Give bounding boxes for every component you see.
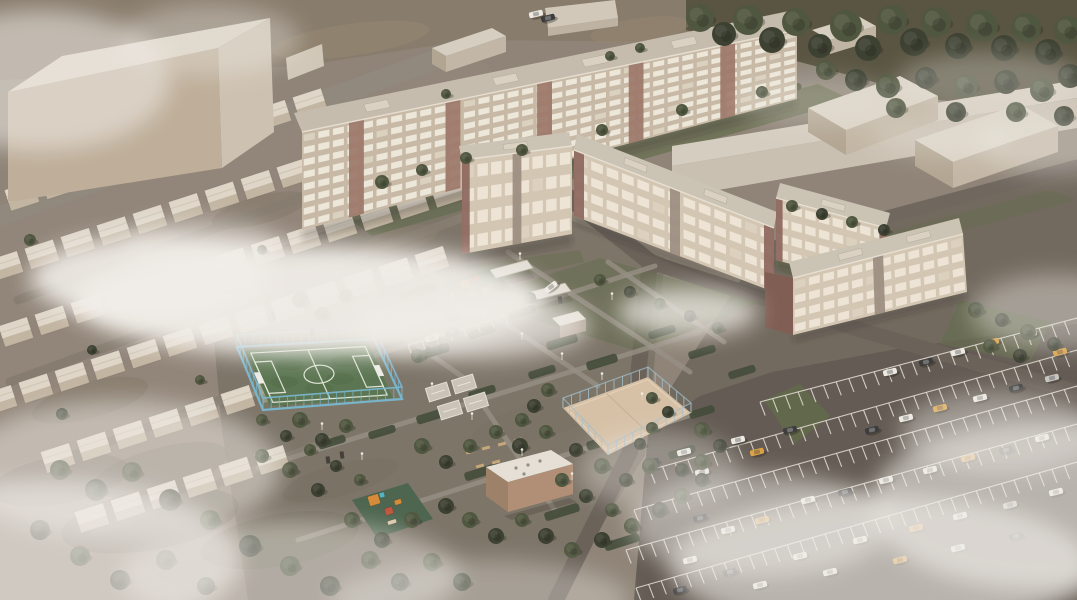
tone-overlay — [0, 0, 1077, 600]
architectural-render — [0, 0, 1077, 600]
render-canvas — [0, 0, 1077, 600]
sepia-wash — [0, 0, 1077, 600]
